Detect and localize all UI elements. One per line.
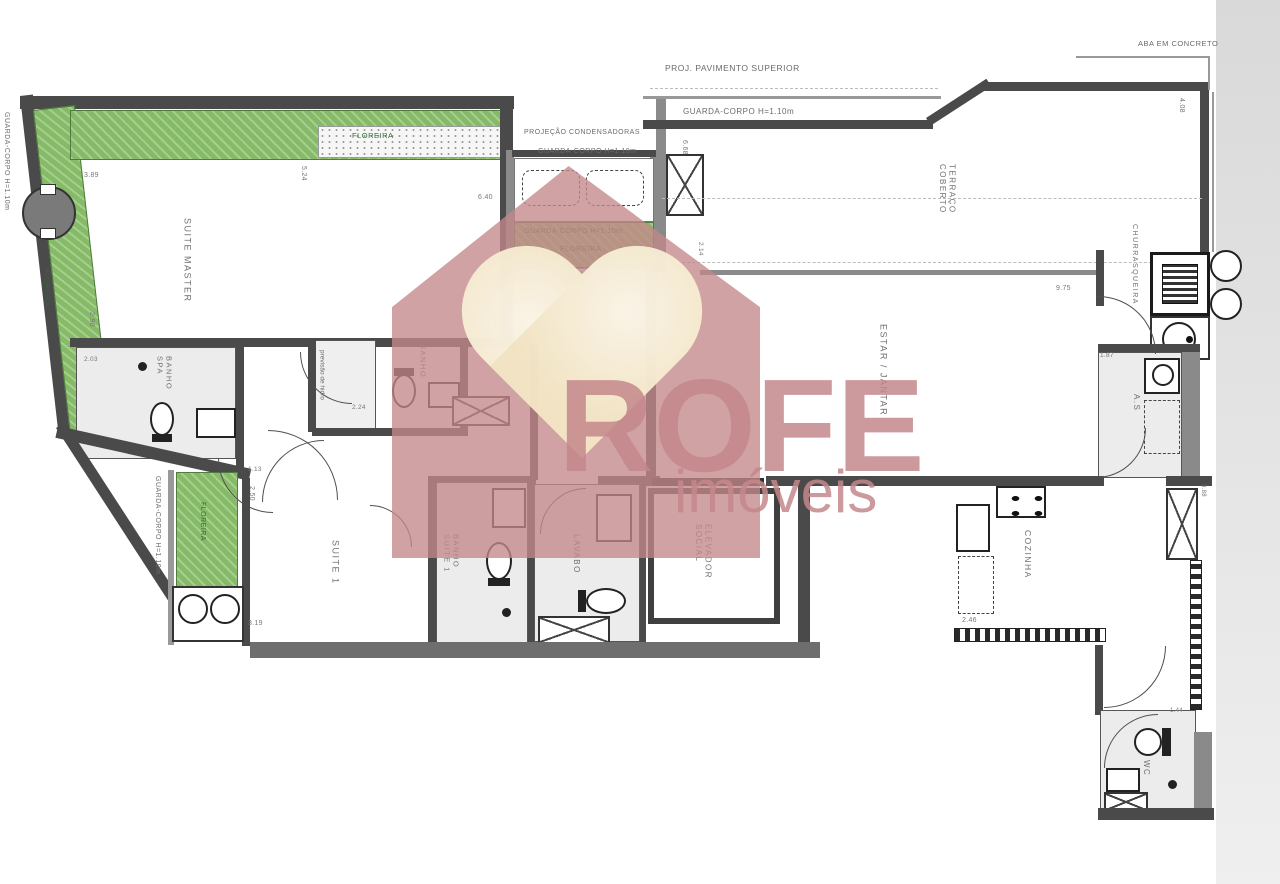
- sink-icon: [1106, 768, 1140, 792]
- duct-shaft: [1166, 488, 1198, 560]
- aba-concreto-label: ABA EM CONCRETO: [1138, 40, 1218, 49]
- projection-line: [650, 88, 938, 89]
- dimension: 4.08: [1178, 98, 1185, 124]
- column-notch: [40, 228, 56, 239]
- room-label-as: A.S: [1132, 394, 1141, 426]
- dimension: 5.24: [300, 166, 307, 192]
- pot-circle: [210, 594, 240, 624]
- tank-dashed: [1144, 400, 1180, 454]
- wall: [1194, 732, 1212, 816]
- door-arc: [1098, 296, 1156, 354]
- parapet-wall: [982, 82, 1208, 91]
- column-notch: [40, 184, 56, 195]
- aba-outline: [1208, 56, 1210, 90]
- room-label-terraco: TERRAÇO COBERTO: [938, 164, 956, 242]
- wall: [1095, 645, 1103, 715]
- shower-icon: [138, 362, 147, 371]
- room-label-churrasqueira: CHURRASQUEIRA: [1130, 224, 1138, 328]
- vent-circle: [1210, 288, 1242, 320]
- sliding-door-track: [700, 270, 1104, 275]
- terrace-centerline: [662, 262, 1202, 263]
- dimension: 6.68: [681, 140, 688, 164]
- wall: [1098, 808, 1214, 820]
- toilet-icon: [586, 588, 626, 614]
- dimension: 1.87: [1100, 352, 1114, 359]
- room-label-suite-1: SUITE 1: [330, 540, 340, 604]
- wall: [962, 476, 1104, 486]
- dimension: 2.50: [248, 486, 255, 508]
- concrete-sill: [318, 126, 502, 158]
- toilet-tank: [488, 578, 510, 586]
- dimension: 2.24: [352, 404, 366, 411]
- previsao-hidro-label: previsão de hidro: [318, 350, 325, 426]
- room-label-banho-spa: BANHO SPA: [155, 356, 172, 408]
- parapet-line: [643, 96, 941, 99]
- shower-icon: [502, 608, 511, 617]
- vent-circle: [1210, 250, 1242, 282]
- proj-pavimento-label: PROJ. PAVIMENTO SUPERIOR: [665, 64, 800, 74]
- floor-plan: GUARDA-CORPO H=1.10m GUARDA-CORPO H=1.10…: [0, 0, 1280, 884]
- guarda-corpo-label: GUARDA-CORPO H=1.10m: [153, 476, 161, 616]
- wall: [1182, 352, 1200, 480]
- wall: [236, 344, 244, 468]
- dimension: 6.40: [478, 194, 493, 201]
- room-label-suite-master: SUITE MASTER: [182, 218, 192, 342]
- dimension: 9.75: [1056, 285, 1071, 292]
- sink-icon: [196, 408, 236, 438]
- pot-circle: [178, 594, 208, 624]
- floreira-label: FLOREIRA: [352, 132, 394, 141]
- washer-drum: [1152, 364, 1174, 386]
- dimension: 2.46: [962, 617, 977, 624]
- dimension: 3.88: [1200, 484, 1206, 510]
- dimension: 1.13: [248, 466, 262, 473]
- dimension: 3.89: [84, 172, 99, 179]
- faucet-dot: [1186, 336, 1193, 343]
- dimension: 3.19: [248, 620, 263, 627]
- parapet-wall: [1200, 90, 1209, 258]
- watermark-subtitle: imóveis: [674, 462, 877, 522]
- counter-dashed: [958, 556, 994, 614]
- door-arc: [1104, 646, 1166, 708]
- toilet-tank: [1162, 728, 1171, 756]
- wall-hatched: [1190, 560, 1202, 710]
- parapet-line: [1212, 92, 1214, 252]
- dimension: 2.90: [88, 312, 95, 336]
- grill-icon: [1162, 264, 1198, 304]
- page-edge-shading: [1216, 0, 1280, 884]
- kitchen-bottom-wall: [954, 628, 1106, 642]
- toilet-tank: [152, 434, 172, 442]
- room-label-wc: WC: [1142, 760, 1151, 788]
- floreira-label: FLOREIRA: [198, 502, 206, 582]
- shower-icon: [1168, 780, 1177, 789]
- sink-icon: [956, 504, 990, 552]
- terrace-centerline: [662, 198, 1202, 199]
- dimension: 2.03: [84, 356, 98, 363]
- aba-outline: [1076, 56, 1210, 58]
- room-label-cozinha: COZINHA: [1022, 530, 1032, 600]
- floreira-label: FLOREIRA: [42, 268, 50, 344]
- guarda-corpo-label: GUARDA-CORPO H=1.10m: [683, 107, 794, 116]
- guarda-corpo-label: GUARDA-CORPO H=1.10m: [538, 148, 637, 156]
- wall: [20, 96, 514, 109]
- stove-icon: [996, 486, 1046, 518]
- wall: [250, 642, 820, 658]
- duct-shaft: [538, 616, 610, 644]
- proj-condensadoras-label: PROJEÇÃO CONDENSADORAS: [524, 129, 640, 137]
- dimension: 1.44: [1170, 708, 1183, 714]
- parapet-wall: [643, 120, 933, 129]
- guarda-corpo-label: GUARDA-CORPO H=1.10m: [2, 112, 10, 332]
